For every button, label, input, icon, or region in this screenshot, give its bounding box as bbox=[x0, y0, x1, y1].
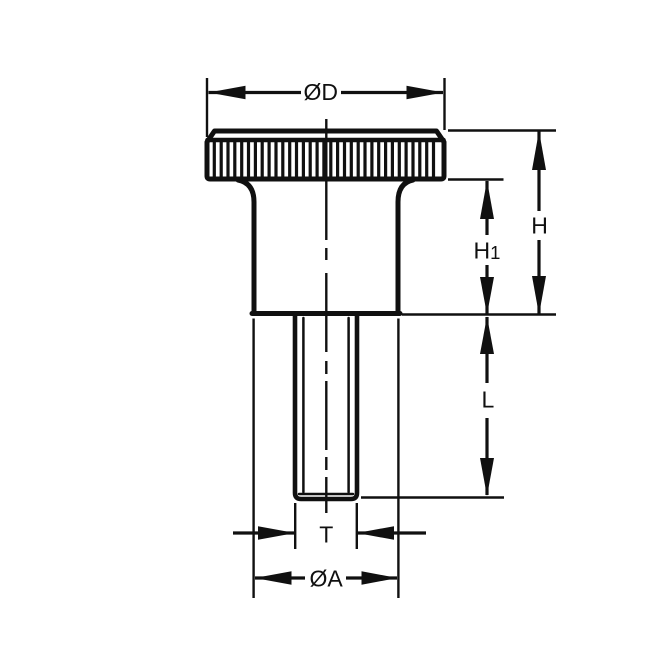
svg-text:ØA: ØA bbox=[310, 566, 344, 592]
svg-text:H: H bbox=[531, 213, 548, 239]
svg-text:T: T bbox=[319, 522, 333, 548]
svg-text:L: L bbox=[482, 387, 495, 413]
svg-text:ØD: ØD bbox=[304, 79, 339, 105]
svg-text:H1: H1 bbox=[474, 238, 501, 264]
